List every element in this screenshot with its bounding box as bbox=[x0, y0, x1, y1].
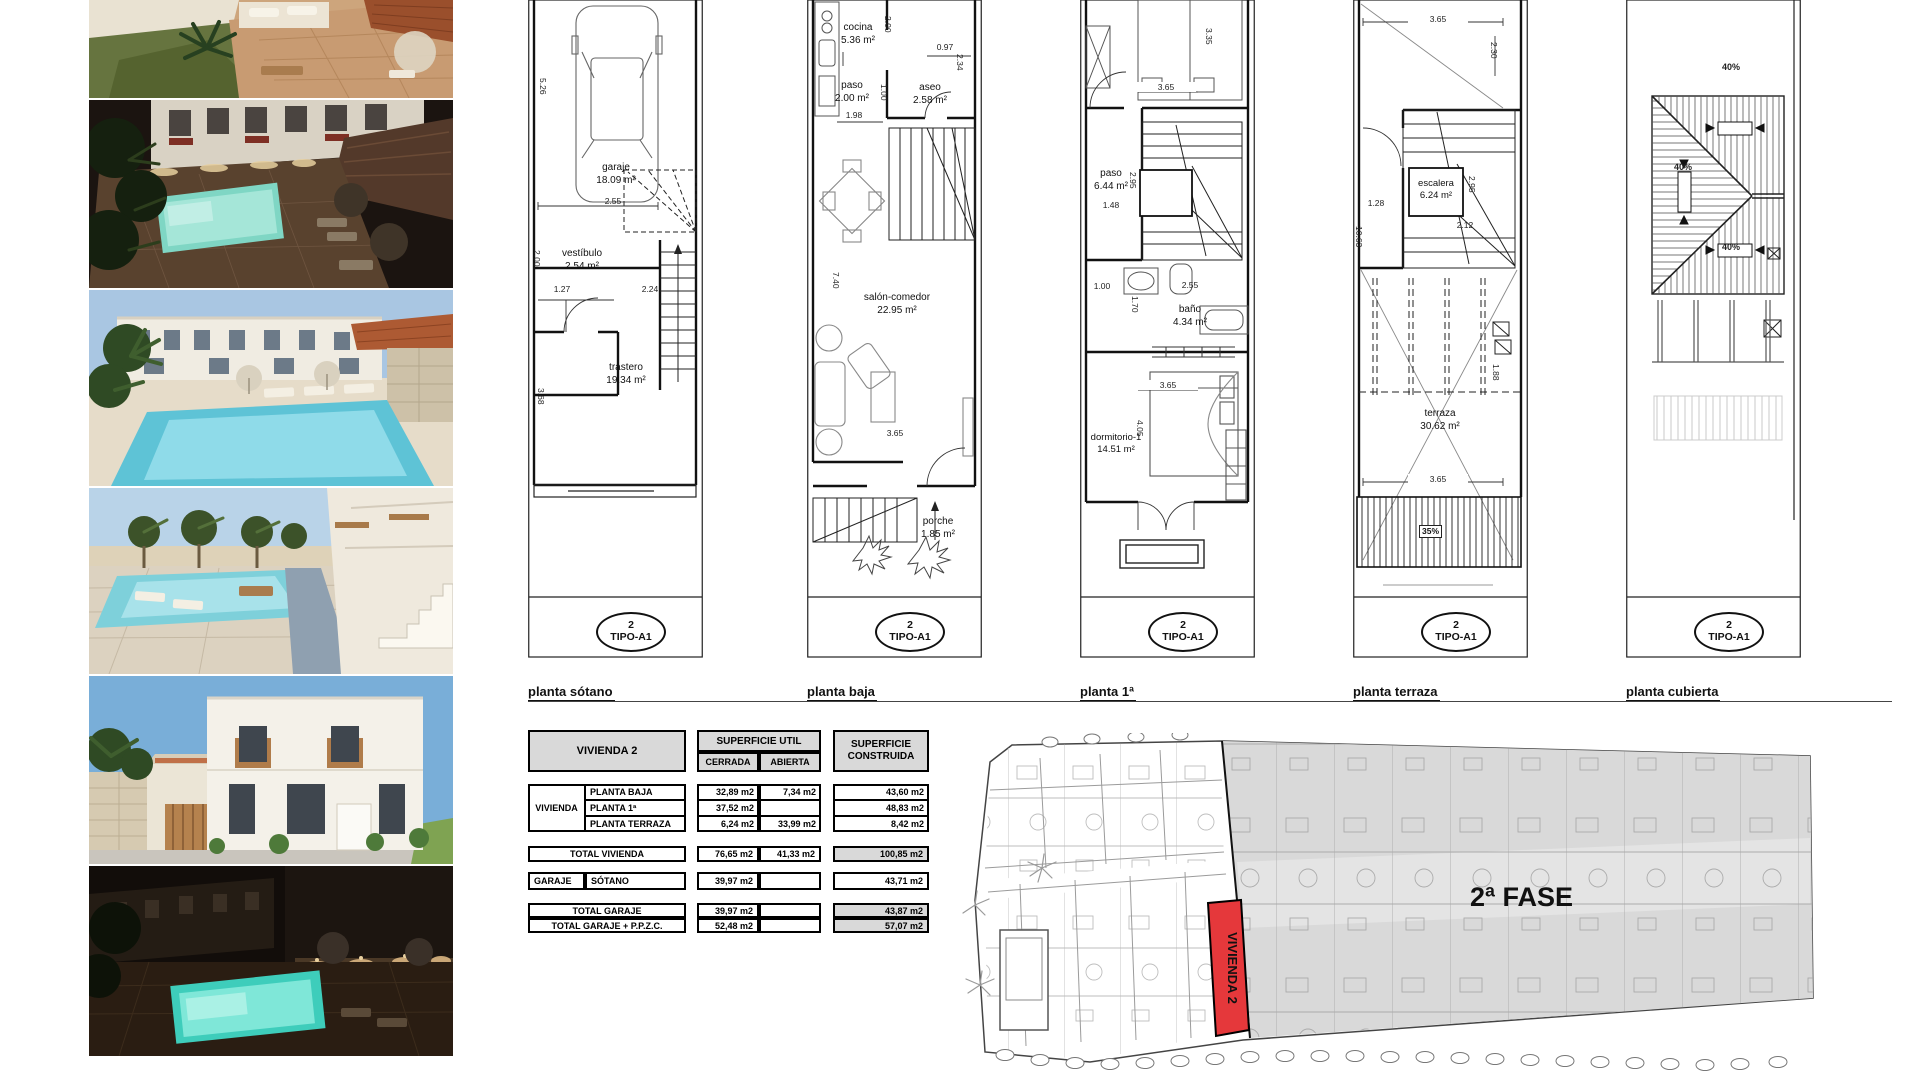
room-area: 5.36 m² bbox=[827, 35, 889, 48]
plan-caption-primera: planta 1ª bbox=[1080, 684, 1136, 702]
floorplan-cubierta: 40% 40% 40% 2 TIPO-A1 bbox=[1626, 0, 1801, 658]
phase1-upper-units bbox=[985, 742, 1224, 880]
phase-label: 2ª FASE bbox=[1470, 882, 1573, 912]
dim-label: 2.95 bbox=[1128, 172, 1138, 189]
room-area: 14.51 m² bbox=[1080, 444, 1152, 456]
room-name: aseo bbox=[919, 82, 941, 93]
plan-caption-baja: planta baja bbox=[807, 684, 877, 702]
total-garaje-construida: 43,87 m2 bbox=[833, 903, 929, 918]
dim-label: 1.27 bbox=[540, 284, 584, 294]
floorplan-drawing-sotano bbox=[528, 0, 703, 658]
photo-facade-day bbox=[89, 676, 453, 864]
col-header-cerrada: CERRADA bbox=[697, 752, 759, 772]
room-label-vestibulo: vestíbulo 2.54 m² bbox=[542, 248, 622, 273]
plan-caption-cubierta: planta cubierta bbox=[1626, 684, 1720, 702]
highlight-label: VIVIENDA 2 bbox=[1225, 932, 1240, 1004]
room-label-bano: baño 4.34 m² bbox=[1158, 304, 1222, 329]
type-badge: 2 TIPO-A1 bbox=[1421, 612, 1491, 652]
caption-rule bbox=[528, 701, 1892, 702]
cell-construida: 8,42 m2 bbox=[833, 816, 929, 832]
plan-sheet: 5.26 garaje 18.09 m² 2.55 vestíbulo 2.54… bbox=[0, 0, 1920, 1080]
plan-caption-sotano: planta sótano bbox=[528, 684, 615, 702]
floorplan-drawing-primera bbox=[1080, 0, 1255, 658]
col-header-superficie-util: SUPERFICIE UTIL bbox=[697, 730, 821, 752]
room-label-aseo: aseo 2.58 m² bbox=[897, 82, 963, 107]
room-label-porche: porche 1.85 m² bbox=[907, 516, 969, 541]
total-vivienda-abierta: 41,33 m2 bbox=[759, 846, 821, 862]
room-name: paso bbox=[1100, 168, 1122, 179]
room-label-escalera: escalera 6.24 m² bbox=[1411, 178, 1461, 202]
dim-label: 1.98 bbox=[831, 110, 877, 120]
room-name: porche bbox=[923, 516, 954, 527]
room-area: 19.34 m² bbox=[576, 375, 676, 388]
dim-label: 1.00 bbox=[1082, 281, 1122, 291]
room-area: 30.62 m² bbox=[1395, 421, 1485, 434]
dim-label: 2.00 bbox=[532, 250, 542, 267]
room-name: dormitorio-1 bbox=[1091, 432, 1142, 443]
room-name: vestíbulo bbox=[562, 248, 602, 259]
total-garaje-label: TOTAL GARAJE bbox=[528, 903, 686, 918]
room-label-cocina: cocina 5.36 m² bbox=[827, 22, 889, 47]
floorplan-drawing-terraza bbox=[1353, 0, 1528, 658]
col-header-abierta: ABIERTA bbox=[759, 752, 821, 772]
dim-label: 5.26 bbox=[538, 78, 548, 95]
cell-construida: 43,60 m2 bbox=[833, 784, 929, 800]
room-label-trastero: trastero 19.34 m² bbox=[576, 362, 676, 387]
room-name: baño bbox=[1179, 304, 1201, 315]
photo-illustration bbox=[89, 100, 453, 288]
room-area: 18.09 m² bbox=[556, 175, 676, 188]
table-title: VIVIENDA 2 bbox=[528, 730, 686, 772]
row-group-vivienda: VIVIENDA bbox=[528, 784, 585, 832]
dim-label: 2.00 bbox=[883, 16, 893, 33]
dim-label: 10.63 bbox=[1354, 226, 1364, 247]
total-vivienda-construida: 100,85 m2 bbox=[833, 846, 929, 862]
total-garaje-ppzc-cerrada: 52,48 m2 bbox=[697, 918, 759, 933]
garaje-group-label: GARAJE bbox=[528, 872, 585, 890]
floorplan-baja: cocina 5.36 m² 2.00 0.97 2.34 paso 2.00 … bbox=[807, 0, 982, 658]
dim-label: 1.88 bbox=[1491, 364, 1501, 381]
dim-label: 1.48 bbox=[1088, 200, 1134, 210]
photo-illustration bbox=[89, 866, 453, 1056]
room-name: terraza bbox=[1424, 408, 1455, 419]
room-area: 4.34 m² bbox=[1158, 317, 1222, 330]
badge-type: TIPO-A1 bbox=[889, 632, 930, 644]
dim-label: 3.65 bbox=[865, 428, 925, 438]
room-name: paso bbox=[841, 80, 863, 91]
photo-patio-palms-day bbox=[89, 0, 453, 98]
photo-illustration bbox=[89, 0, 453, 98]
dim-label: 2.30 bbox=[1489, 42, 1499, 59]
dim-label: 4.05 bbox=[1135, 420, 1145, 437]
dim-label: 7.40 bbox=[831, 272, 841, 289]
row-label: PLANTA 1ª bbox=[585, 800, 686, 816]
col-header-superficie-construida: SUPERFICIE CONSTRUIDA bbox=[833, 730, 929, 772]
slope-label: 35% bbox=[1419, 525, 1442, 538]
cell-empty bbox=[759, 918, 821, 933]
cell-cerrada: 32,89 m2 bbox=[697, 784, 759, 800]
room-label-paso: paso 2.00 m² bbox=[821, 80, 883, 105]
dim-label: 2.95 bbox=[1467, 176, 1477, 193]
cell-empty bbox=[759, 903, 821, 918]
cell-construida: 48,83 m2 bbox=[833, 800, 929, 816]
type-badge: 2 TIPO-A1 bbox=[875, 612, 945, 652]
photo-pool-day-walkway bbox=[89, 488, 453, 674]
dim-label: 2.24 bbox=[620, 284, 680, 294]
communal-pool bbox=[1000, 930, 1048, 1030]
room-label-salon-comedor: salón-comedor 22.95 m² bbox=[841, 292, 953, 317]
slope-label: 40% bbox=[1722, 242, 1740, 252]
badge-type: TIPO-A1 bbox=[1435, 632, 1476, 644]
cell-empty bbox=[759, 872, 821, 890]
type-badge: 2 TIPO-A1 bbox=[1694, 612, 1764, 652]
dim-label: 1.00 bbox=[879, 84, 889, 101]
photo-pool-night-courtyard bbox=[89, 866, 453, 1056]
garaje-row-label: SÓTANO bbox=[585, 872, 686, 890]
room-area: 22.95 m² bbox=[841, 305, 953, 318]
plan-caption-terraza: planta terraza bbox=[1353, 684, 1440, 702]
room-label-garaje: garaje 18.09 m² bbox=[556, 162, 676, 187]
cell-cerrada: 6,24 m2 bbox=[697, 816, 759, 832]
room-name: escalera bbox=[1418, 178, 1454, 189]
dim-label: 2.12 bbox=[1439, 220, 1491, 230]
room-area: 6.24 m² bbox=[1411, 190, 1461, 202]
photo-pool-night-aerial bbox=[89, 100, 453, 288]
room-name: cocina bbox=[844, 22, 873, 33]
photo-illustration bbox=[89, 488, 453, 674]
dim-label: 3.65 bbox=[1408, 14, 1468, 24]
room-area: 2.00 m² bbox=[821, 93, 883, 106]
type-badge: 2 TIPO-A1 bbox=[596, 612, 666, 652]
room-name: trastero bbox=[609, 362, 643, 373]
badge-type: TIPO-A1 bbox=[1162, 632, 1203, 644]
floorplan-drawing-cubierta bbox=[1626, 0, 1801, 658]
room-area: 2.58 m² bbox=[897, 95, 963, 108]
floorplan-primera: 3.35 3.65 paso 6.44 m² 2.95 1.48 1.00 2.… bbox=[1080, 0, 1255, 658]
photo-pool-day-townhouses bbox=[89, 290, 453, 486]
badge-type: TIPO-A1 bbox=[1708, 632, 1749, 644]
garaje-construida: 43,71 m2 bbox=[833, 872, 929, 890]
site-plan: VIVIENDA 2 2ª FASE bbox=[960, 733, 1830, 1078]
dim-label: 2.55 bbox=[578, 196, 648, 206]
room-name: salón-comedor bbox=[864, 292, 930, 303]
total-garaje-ppzc-construida: 57,07 m2 bbox=[833, 918, 929, 933]
dim-label: 3.68 bbox=[536, 388, 546, 405]
type-badge: 2 TIPO-A1 bbox=[1148, 612, 1218, 652]
room-area: 2.54 m² bbox=[542, 261, 622, 274]
photo-illustration bbox=[89, 290, 453, 486]
dim-label: 1.28 bbox=[1355, 198, 1397, 208]
slope-label: 40% bbox=[1722, 62, 1740, 72]
cell-abierta bbox=[759, 800, 821, 816]
total-garaje-ppzc-label: TOTAL GARAJE + P.P.Z.C. bbox=[528, 918, 686, 933]
dim-label: 3.65 bbox=[1408, 474, 1468, 484]
badge-type: TIPO-A1 bbox=[610, 632, 651, 644]
floorplan-terraza: 3.65 2.30 escalera 6.24 m² 1.28 2.12 2.9… bbox=[1353, 0, 1528, 658]
dim-label: 2.34 bbox=[955, 54, 965, 71]
total-vivienda-label: TOTAL VIVIENDA bbox=[528, 846, 686, 862]
dim-label: 0.97 bbox=[923, 42, 967, 52]
cell-abierta: 7,34 m2 bbox=[759, 784, 821, 800]
dim-label: 3.65 bbox=[1138, 380, 1198, 390]
total-garaje-cerrada: 39,97 m2 bbox=[697, 903, 759, 918]
dim-label: 2.55 bbox=[1164, 280, 1216, 290]
garaje-cerrada: 39,97 m2 bbox=[697, 872, 759, 890]
photo-illustration bbox=[89, 676, 453, 864]
row-label: PLANTA BAJA bbox=[585, 784, 686, 800]
dim-label: 3.65 bbox=[1136, 82, 1196, 92]
room-name: garaje bbox=[602, 162, 630, 173]
room-area: 1.85 m² bbox=[907, 529, 969, 542]
dim-label: 1.70 bbox=[1130, 296, 1140, 313]
floorplan-sotano: 5.26 garaje 18.09 m² 2.55 vestíbulo 2.54… bbox=[528, 0, 703, 658]
row-label: PLANTA TERRAZA bbox=[585, 816, 686, 832]
cell-cerrada: 37,52 m2 bbox=[697, 800, 759, 816]
total-vivienda-cerrada: 76,65 m2 bbox=[697, 846, 759, 862]
room-label-terraza: terraza 30.62 m² bbox=[1395, 408, 1485, 433]
slope-label: 40% bbox=[1674, 162, 1692, 172]
cell-abierta: 33,99 m2 bbox=[759, 816, 821, 832]
dim-label: 3.35 bbox=[1204, 28, 1214, 45]
